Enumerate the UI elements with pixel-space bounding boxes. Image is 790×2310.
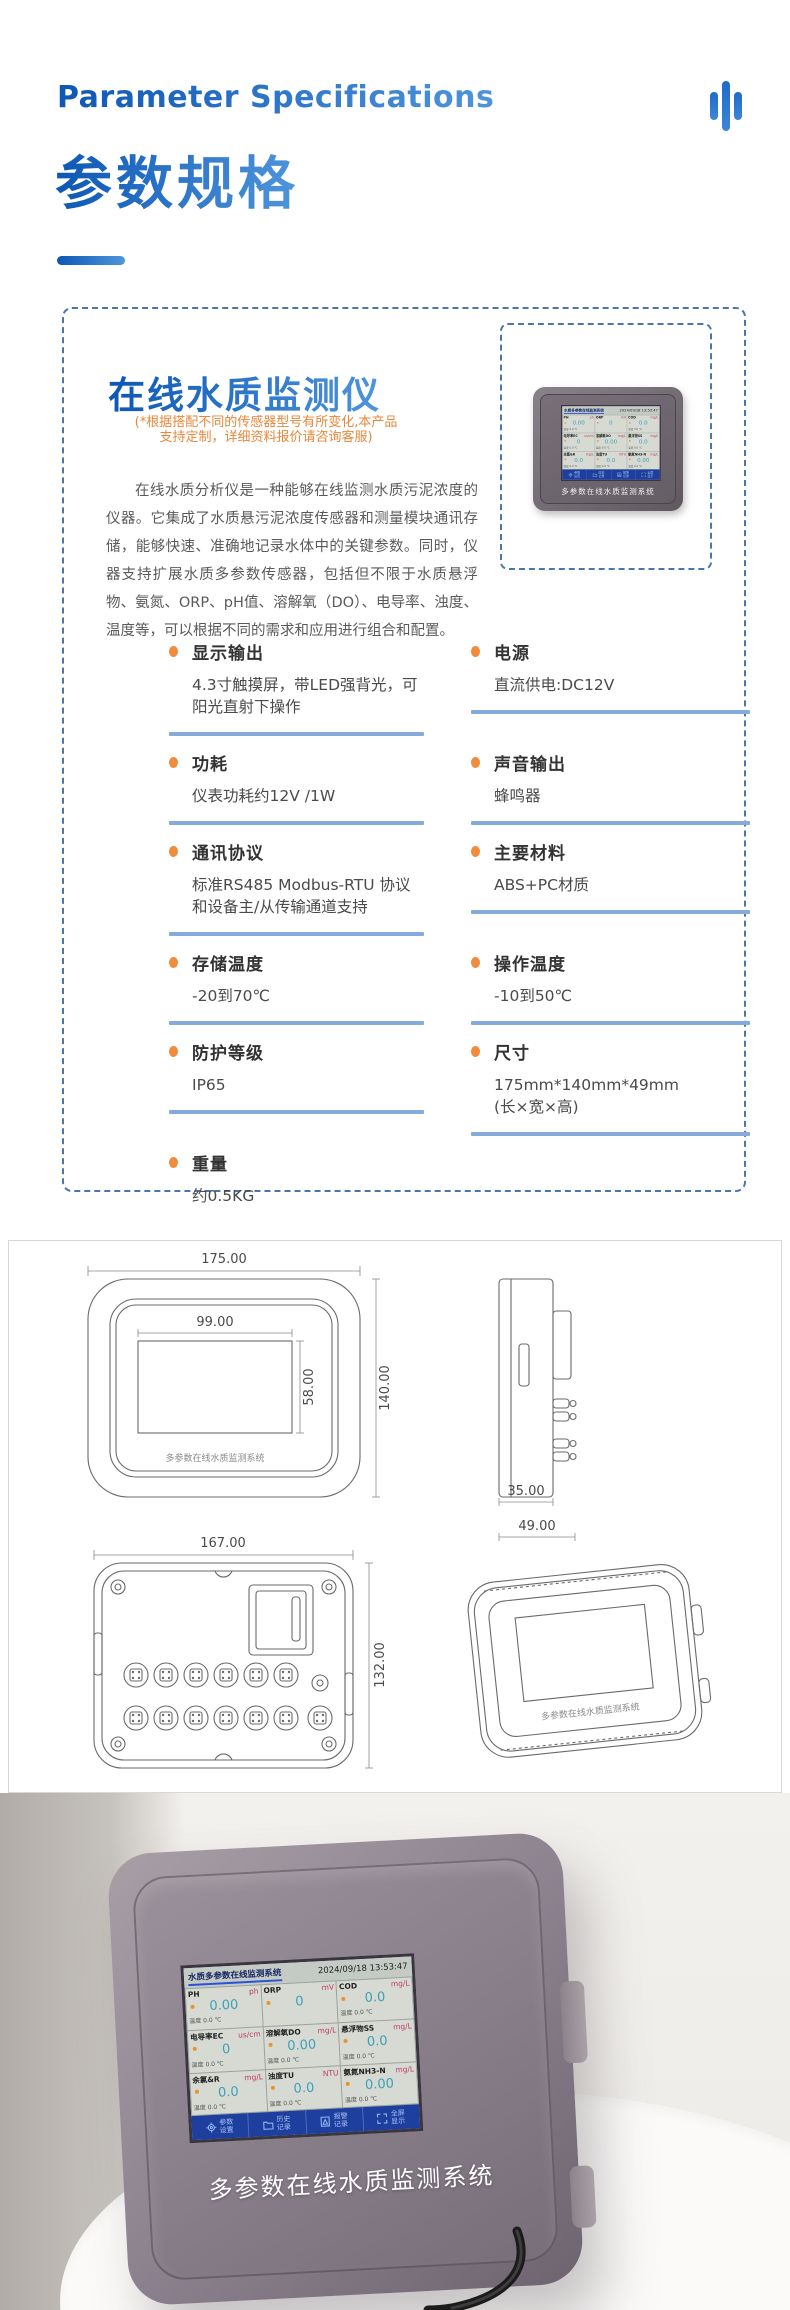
iso-view-label: 多参数在线水质监测系统	[540, 1700, 640, 1722]
toolbar-fullscreen[interactable]: 全屏显示	[363, 2104, 420, 2131]
spec-item-material: 主要材料 ABS+PC材质	[471, 825, 750, 936]
status-dot-icon	[195, 2089, 199, 2093]
toolbar-fullscreen[interactable]: 全屏显示	[636, 469, 660, 479]
gear-icon	[205, 2121, 217, 2133]
spec-item-power: 电源 直流供电:DC12V	[471, 625, 750, 736]
bullet-icon	[169, 757, 178, 768]
technical-drawings-panel: 175.00 99.00 58.00 140.00 多参数在线水质监测系统	[8, 1240, 782, 1793]
front-view-label: 多参数在线水质监测系统	[165, 1452, 264, 1464]
param-cell-cod: CODmg/L0.0温度 0.0 ℃	[627, 415, 659, 433]
disclaimer: (*根据搭配不同的传感器型号有所变化,本产品 支持定制，详细资料报价请咨询客服)	[88, 415, 444, 445]
screen-parameter-grid: PHph0.00温度 0.0 ℃ ORPmV0 CODmg/L0.0温度 0.0…	[562, 415, 659, 470]
bullet-icon	[471, 646, 480, 657]
device-side-tab	[569, 2165, 596, 2228]
param-cell-ss: 悬浮物SSmg/L0.0温度 0.0 ℃	[339, 2020, 416, 2065]
spec-item-operating-temp: 操作温度 -10到50℃	[471, 936, 750, 1025]
spec-grid: 显示输出 4.3寸触摸屏，带LED强背光，可阳光直射下操作 电源 直流供电:DC…	[169, 625, 750, 1207]
screen-system-title: 水质多参数在线监测系统	[564, 407, 604, 413]
param-cell-cl: 余氯&Rmg/L0.0温度 0.0 ℃	[190, 2070, 267, 2115]
bullet-icon	[471, 1046, 480, 1057]
param-cell-cod: CODmg/L0.0温度 0.0 ℃	[337, 1977, 414, 2022]
screen-toolbar: 参数设置 历史记录 报警记录 全屏显示	[562, 469, 659, 479]
spec-item-ip-rating: 防护等级 IP65	[169, 1025, 424, 1136]
screen-parameter-grid: PHph0.00温度 0.0 ℃ ORPmV0 CODmg/L0.0温度 0.0…	[185, 1976, 419, 2116]
spec-item-storage-temp: 存储温度 -20到70℃	[169, 936, 424, 1025]
dim-front-width: 175.00	[201, 1252, 247, 1267]
divider	[169, 1110, 424, 1114]
param-cell-nh3n: 氨氮NH3-Nmg/L0.00温度 0.0 ℃	[627, 451, 659, 469]
divider	[471, 1132, 750, 1136]
toolbar-history[interactable]: 历史记录	[248, 2110, 306, 2137]
param-cell-ph: PHph0.00温度 0.0 ℃	[563, 415, 595, 433]
param-cell-tu: 浊度TUNTU0.0温度 0.0 ℃	[266, 2066, 343, 2111]
dim-side-body: 35.00	[507, 1484, 544, 1499]
side-view-drawing: 35.00 49.00	[439, 1249, 669, 1549]
product-thumbnail-box: 水质多参数在线监测系统 2024/09/18 13:53:47 PHph0.00…	[500, 323, 712, 570]
accent-bar	[57, 256, 125, 265]
status-dot-icon	[266, 2001, 270, 2005]
screen-system-title: 水质多参数在线监测系统	[188, 1966, 282, 1986]
divider	[471, 910, 750, 914]
product-thumbnail-device: 水质多参数在线监测系统 2024/09/18 13:53:47 PHph0.00…	[533, 387, 683, 511]
bullet-icon	[169, 646, 178, 657]
bullet-icon	[169, 846, 178, 857]
page-title-en: Parameter Specifications	[57, 80, 494, 115]
param-cell-orp: ORPmV0	[261, 1981, 338, 2026]
toolbar-alarm-log[interactable]: 报警记录	[306, 2107, 364, 2134]
param-cell-ss: 悬浮物SSmg/L0.0温度 0.0 ℃	[627, 433, 659, 451]
dim-back-height: 132.00	[373, 1642, 388, 1688]
mini-device-label: 多参数在线水质监测系统	[541, 486, 675, 497]
dim-screen-width: 99.00	[196, 1315, 233, 1330]
mini-device-face: 水质多参数在线监测系统 2024/09/18 13:53:47 PHph0.00…	[540, 394, 676, 504]
param-cell-do: 溶解氧DOmg/L0.00温度 0.0 ℃	[263, 2024, 340, 2069]
param-cell-ph: PHph0.00温度 0.0 ℃	[186, 1985, 263, 2030]
page-title-cn: 参数规格	[55, 138, 299, 220]
screen-header: 水质多参数在线监测系统 2024/09/18 13:53:47	[562, 406, 659, 415]
bullet-icon	[169, 1157, 178, 1168]
front-view-drawing: 175.00 99.00 58.00 140.00 多参数在线水质监测系统	[64, 1249, 404, 1539]
bullet-icon	[471, 846, 480, 857]
fullscreen-icon	[641, 472, 646, 477]
param-cell-orp: ORPmV0	[595, 415, 627, 433]
spec-item-weight: 重量 约0.5KG	[169, 1136, 424, 1207]
device-face: 水质多参数在线监测系统 2024/09/18 13:53:47 PHph0.00…	[132, 1857, 560, 2282]
product-photo: 水质多参数在线监测系统 2024/09/18 13:53:47 PHph0.00…	[0, 1793, 790, 2310]
spec-item-consumption: 功耗 仪表功耗约12V /1W	[169, 736, 424, 825]
status-dot-icon	[564, 422, 566, 424]
disclaimer-line-1: (*根据搭配不同的传感器型号有所变化,本产品	[88, 415, 444, 430]
device-front-label: 多参数在线水质监测系统	[147, 2152, 555, 2208]
status-dot-icon	[564, 458, 566, 460]
gear-icon	[568, 472, 573, 477]
fullscreen-icon	[377, 2112, 389, 2124]
iso-view-drawing: 多参数在线水质监测系统	[434, 1541, 734, 1786]
monitor-device: 水质多参数在线监测系统 2024/09/18 13:53:47 PHph0.00…	[106, 1831, 584, 2306]
param-cell-ec: 电导率ECus/cm0温度 0.0 ℃	[563, 433, 595, 451]
dim-side-total: 49.00	[518, 1519, 555, 1534]
toolbar-alarm-log[interactable]: 报警记录	[611, 469, 635, 479]
status-dot-icon	[597, 422, 599, 424]
spec-item-sound: 声音输出 蜂鸣器	[471, 736, 750, 825]
toolbar-param-settings[interactable]: 参数设置	[562, 469, 586, 479]
product-title: 在线水质监测仪	[108, 365, 381, 419]
dim-front-height: 140.00	[378, 1365, 393, 1411]
param-cell-do: 溶解氧DOmg/L0.00温度 0.0 ℃	[595, 433, 627, 451]
param-cell-ec: 电导率ECus/cm0温度 0.0 ℃	[188, 2028, 265, 2073]
toolbar-param-settings[interactable]: 参数设置	[191, 2113, 249, 2140]
dim-screen-height: 58.00	[302, 1368, 317, 1405]
device-screen: 水质多参数在线监测系统 2024/09/18 13:53:47 PHph0.00…	[561, 405, 661, 481]
alarm-icon	[617, 472, 622, 477]
folder-icon	[262, 2118, 274, 2130]
equalizer-icon	[710, 80, 742, 132]
bullet-icon	[471, 957, 480, 968]
spec-item-dimensions: 尺寸 175mm*140mm*49mm (长×宽×高)	[471, 1025, 750, 1136]
disclaimer-line-2: 支持定制，详细资料报价请咨询客服)	[88, 430, 444, 445]
page: Parameter Specifications 参数规格 在线水质监测仪 (*…	[0, 0, 790, 2310]
spec-item-display-output: 显示输出 4.3寸触摸屏，带LED强背光，可阳光直射下操作	[169, 625, 424, 736]
toolbar-history[interactable]: 历史记录	[587, 469, 611, 479]
screen-timestamp: 2024/09/18 13:53:47	[620, 408, 658, 412]
mini-screen-slot: 水质多参数在线监测系统 2024/09/18 13:53:47 PHph0.00…	[561, 405, 662, 482]
spec-panel: 在线水质监测仪 (*根据搭配不同的传感器型号有所变化,本产品 支持定制，详细资料…	[62, 307, 746, 1192]
back-view-drawing: 167.00 132.00	[64, 1533, 409, 1788]
screen-timestamp: 2024/09/18 13:53:47	[318, 1962, 408, 1977]
device-screen: 水质多参数在线监测系统 2024/09/18 13:53:47 PHph0.00…	[180, 1953, 423, 2143]
status-dot-icon	[597, 440, 599, 442]
spec-item-protocol: 通讯协议 标准RS485 Modbus-RTU 协议和设备主/从传输通道支持	[169, 825, 424, 936]
product-description: 在线水质分析仪是一种能够在线监测水质污泥浓度的仪器。它集成了水质悬污泥浓度传感器…	[106, 477, 478, 645]
param-cell-cl: 余氯&Rmg/L0.0温度 0.0 ℃	[563, 451, 595, 469]
bullet-icon	[471, 757, 480, 768]
param-cell-tu: 浊度TUNTU0.0温度 0.0 ℃	[595, 451, 627, 469]
dim-back-width: 167.00	[200, 1536, 246, 1551]
param-cell-nh3n: 氨氮NH3-Nmg/L0.00温度 0.0 ℃	[341, 2062, 418, 2107]
bullet-icon	[169, 1046, 178, 1057]
divider	[471, 710, 750, 714]
device-side-tab	[560, 1980, 588, 2063]
folder-icon	[593, 472, 598, 477]
bullet-icon	[169, 957, 178, 968]
status-dot-icon	[270, 2085, 274, 2089]
status-dot-icon	[597, 458, 599, 460]
alarm-icon	[320, 2115, 332, 2127]
